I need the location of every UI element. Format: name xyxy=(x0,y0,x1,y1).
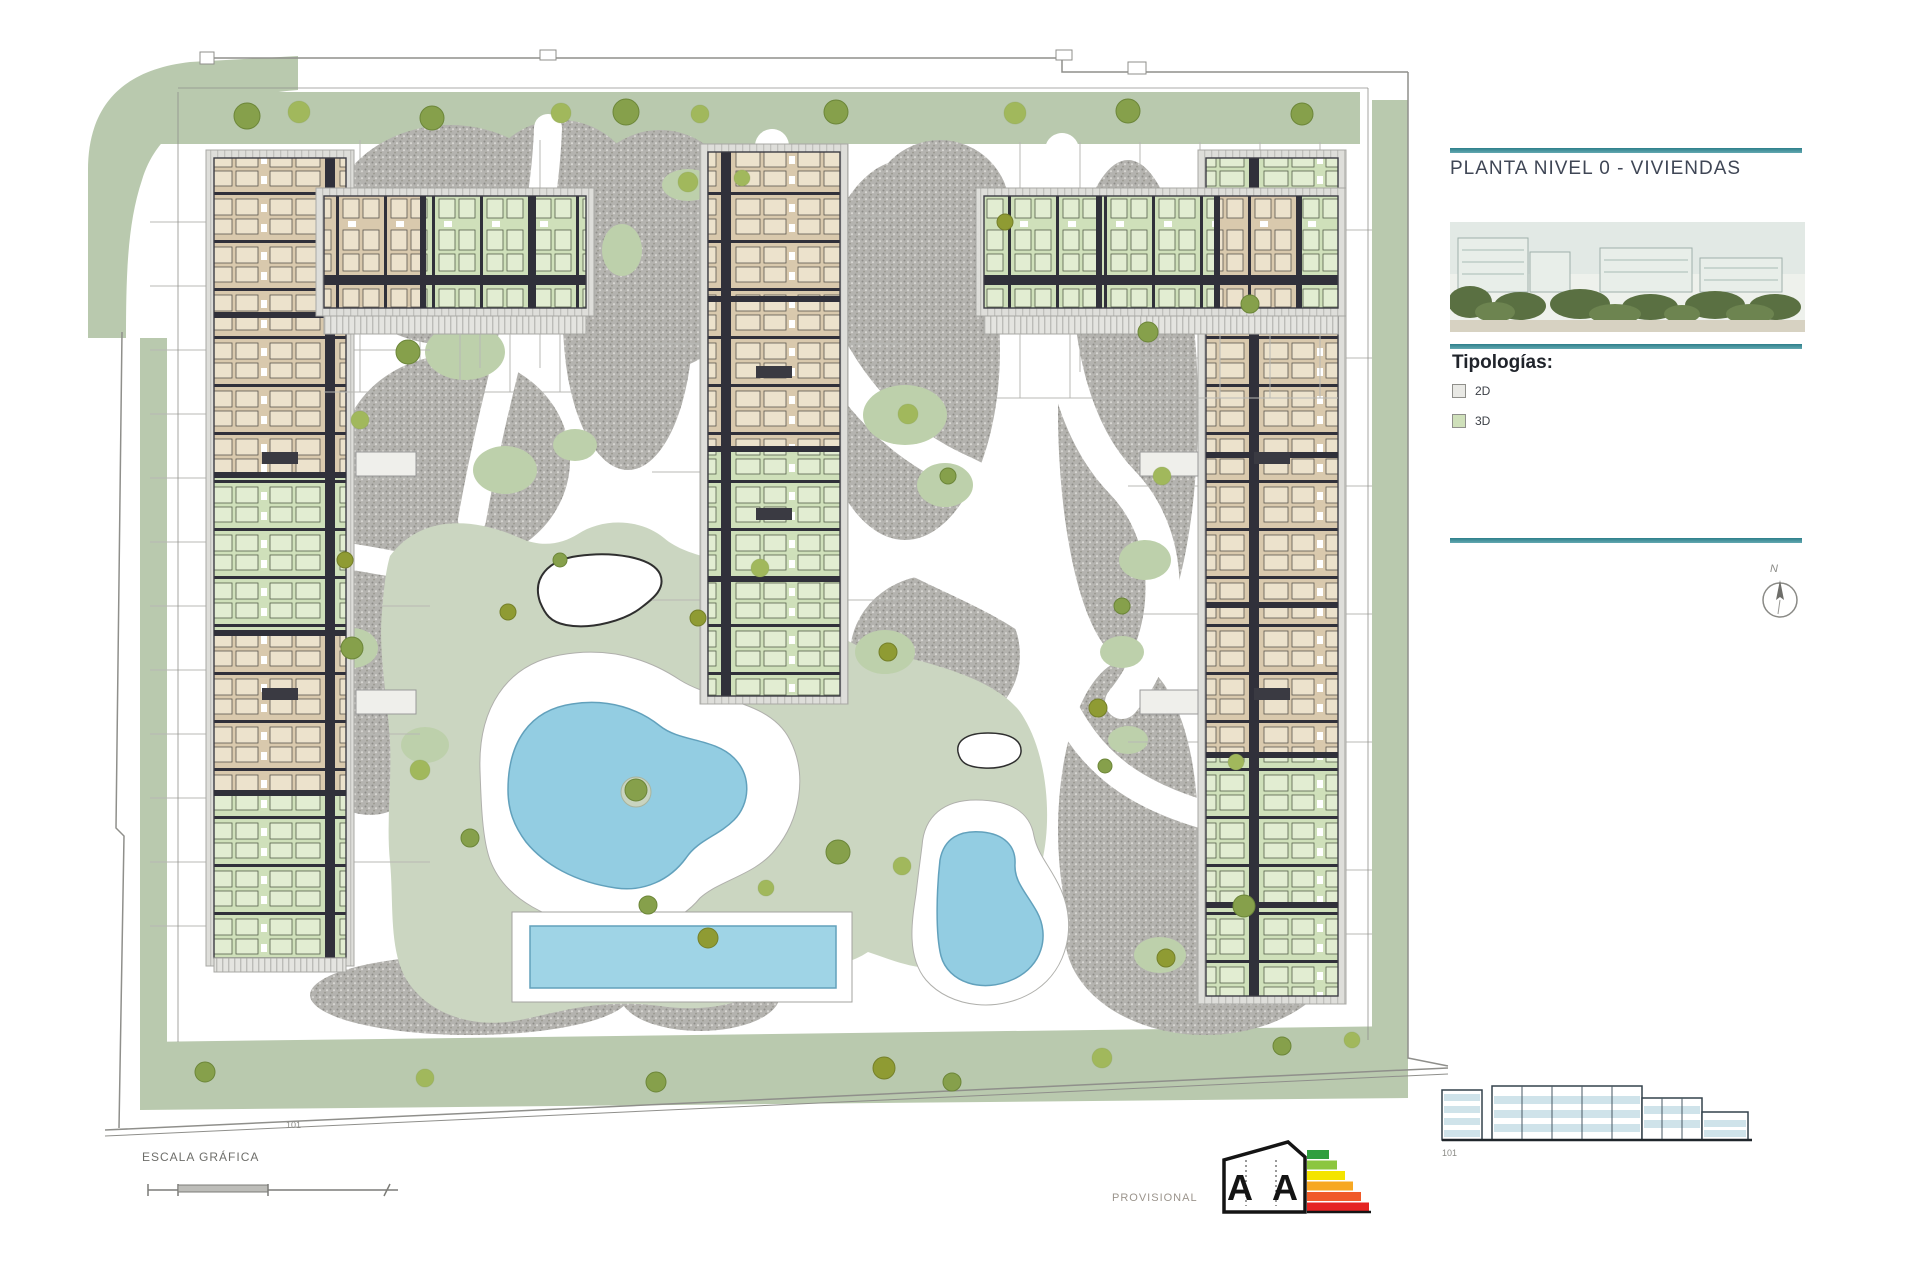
sidebar-rule-middle xyxy=(1450,344,1802,349)
legend-label-3d: 3D xyxy=(1475,414,1490,428)
building-elevation-drawing: 101 xyxy=(1440,1078,1760,1163)
legend-item-3d: 3D xyxy=(1452,414,1490,428)
energy-bars xyxy=(1307,1150,1369,1212)
north-compass-icon: N xyxy=(1748,556,1812,630)
plan-block-label: 101 xyxy=(286,1120,301,1130)
compass-north-label: N xyxy=(1770,563,1778,575)
energy-rating-icon: A A xyxy=(1214,1130,1404,1225)
sidebar-rule-top xyxy=(1450,148,1802,153)
page-title: PLANTA NIVEL 0 - VIVIENDAS xyxy=(1450,158,1741,180)
legend-swatch-2d-icon xyxy=(1452,384,1466,398)
scale-bar-label: ESCALA GRÁFICA xyxy=(142,1150,259,1164)
sidebar-rule-bottom xyxy=(1450,538,1802,543)
building-center-wing xyxy=(700,144,848,704)
legend-heading: Tipologías: xyxy=(1452,352,1553,374)
elevation-label: 101 xyxy=(1442,1148,1457,1158)
energy-letter-a1: A xyxy=(1227,1167,1253,1208)
project-render-image xyxy=(1450,222,1805,332)
scale-bar xyxy=(140,1176,440,1206)
legend-item-2d: 2D xyxy=(1452,384,1490,398)
legend-label-2d: 2D xyxy=(1475,384,1490,398)
provisional-label: PROVISIONAL xyxy=(1112,1192,1198,1204)
legend-swatch-3d-icon xyxy=(1452,414,1466,428)
energy-letter-a2: A xyxy=(1272,1167,1298,1208)
page: 101 PLANTA NIVEL 0 - VIVIENDAS Tipología… xyxy=(0,0,1920,1280)
lap-pool xyxy=(530,926,836,988)
